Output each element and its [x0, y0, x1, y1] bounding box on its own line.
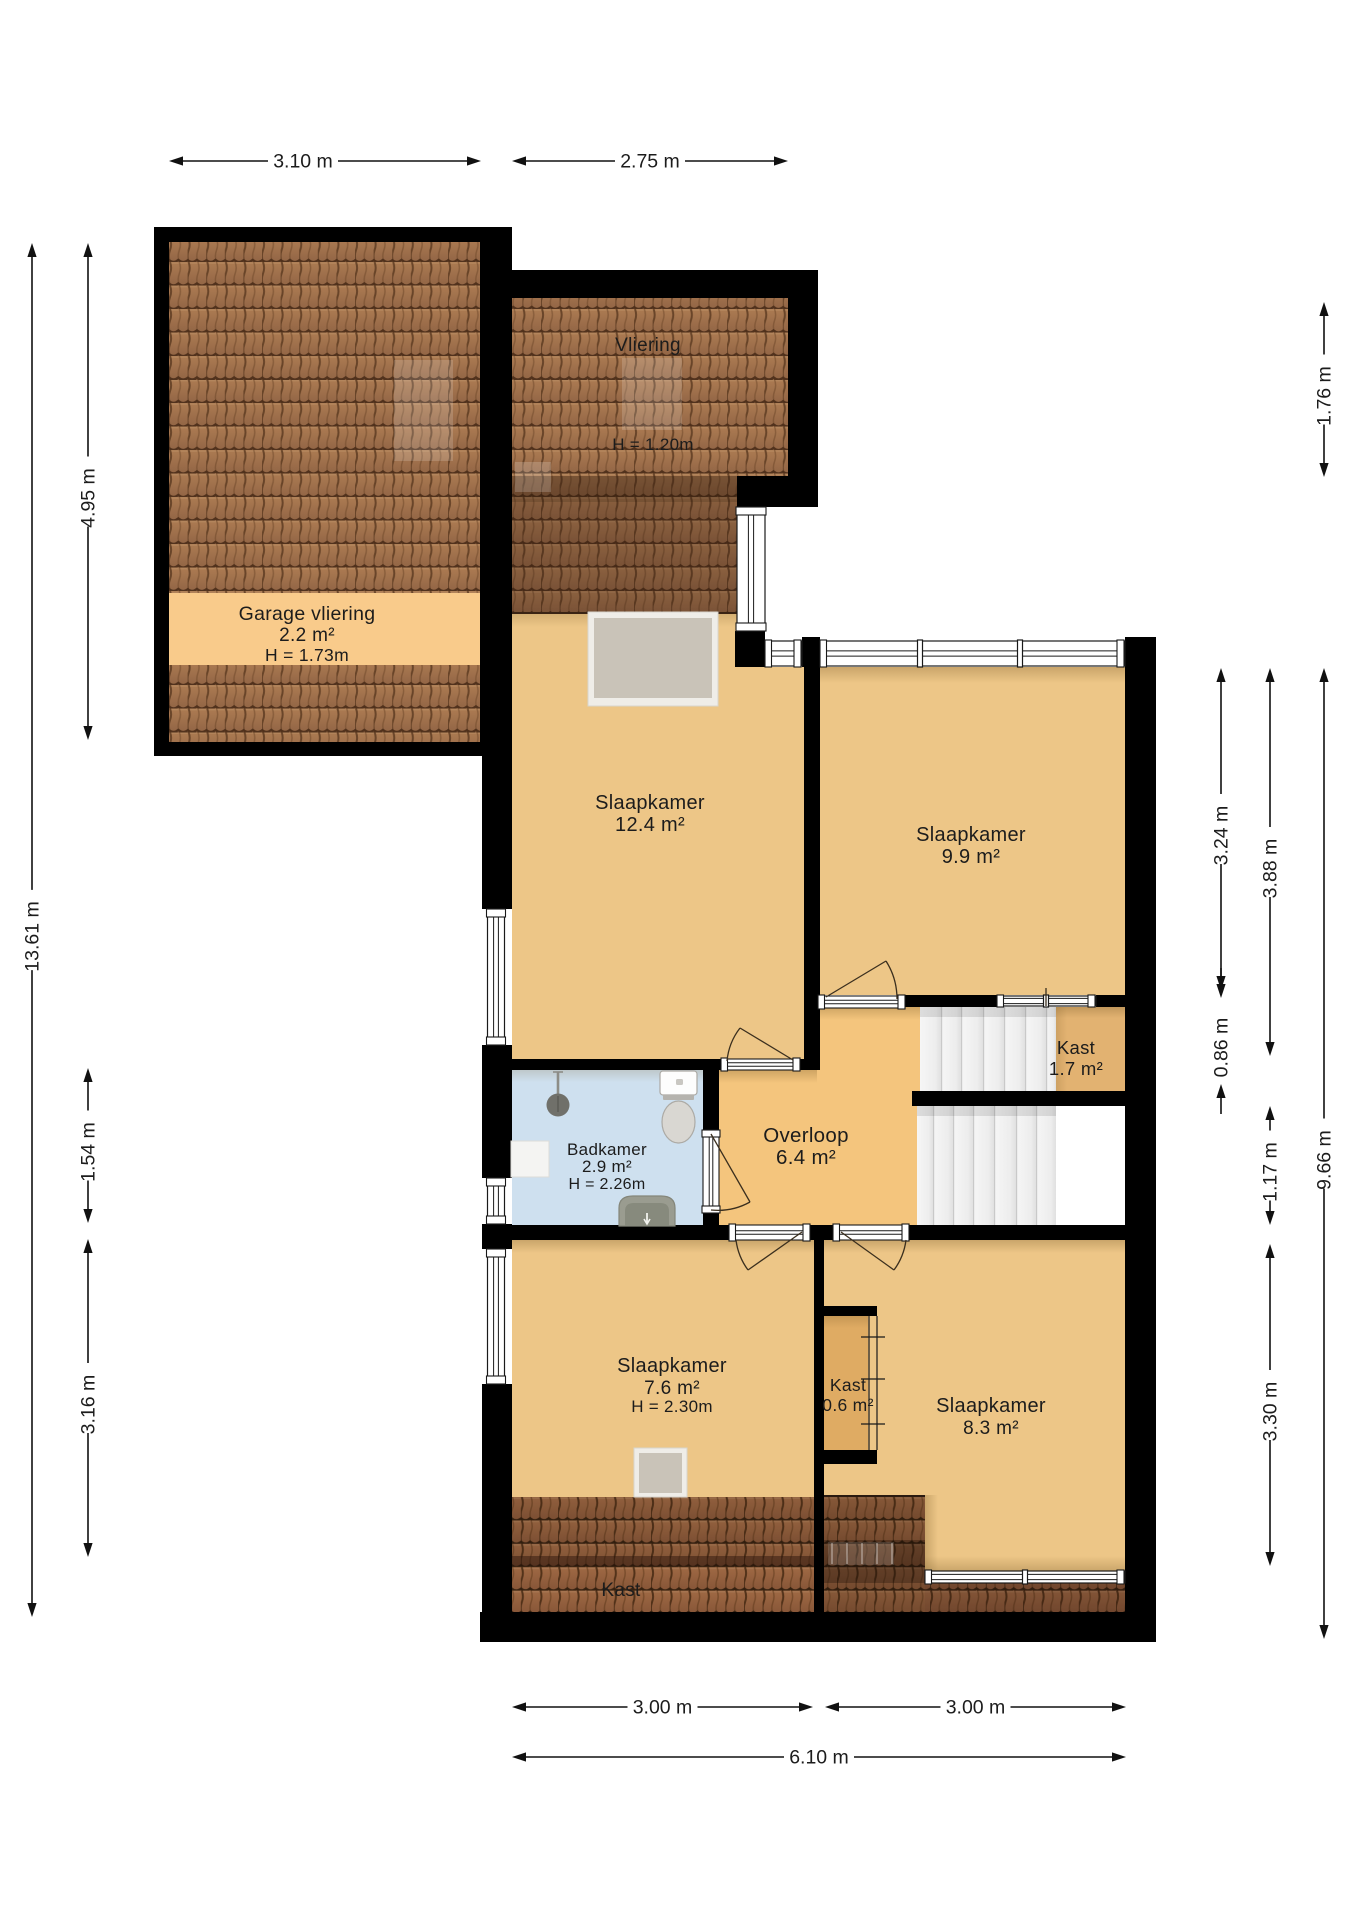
svg-text:3.10 m: 3.10 m — [273, 151, 333, 173]
svg-text:Slaapkamer: Slaapkamer — [936, 1395, 1046, 1417]
svg-text:Slaapkamer: Slaapkamer — [595, 792, 705, 814]
svg-text:Kast: Kast — [601, 1580, 641, 1601]
svg-text:H = 2.26m: H = 2.26m — [569, 1176, 646, 1193]
svg-text:Garage vliering: Garage vliering — [239, 603, 376, 625]
svg-text:2.9 m²: 2.9 m² — [582, 1157, 632, 1176]
svg-text:13.61 m: 13.61 m — [22, 901, 44, 971]
svg-text:8.3 m²: 8.3 m² — [963, 1418, 1019, 1439]
svg-text:1.17 m: 1.17 m — [1260, 1142, 1282, 1202]
svg-text:7.6 m²: 7.6 m² — [644, 1378, 700, 1399]
svg-text:1.54 m: 1.54 m — [78, 1122, 100, 1182]
svg-text:3.24 m: 3.24 m — [1211, 806, 1233, 866]
svg-text:6.4 m²: 6.4 m² — [776, 1146, 836, 1169]
svg-text:Overloop: Overloop — [763, 1124, 849, 1147]
svg-text:Kast: Kast — [830, 1375, 866, 1395]
svg-text:Vliering: Vliering — [615, 335, 681, 356]
svg-text:H = 1.20m: H = 1.20m — [612, 435, 694, 454]
svg-text:3.00 m: 3.00 m — [633, 1697, 693, 1719]
svg-text:9.9 m²: 9.9 m² — [942, 846, 1001, 868]
svg-text:6.10 m: 6.10 m — [789, 1747, 849, 1769]
svg-text:0.6 m²: 0.6 m² — [822, 1395, 873, 1415]
svg-text:1.7 m²: 1.7 m² — [1049, 1058, 1103, 1079]
svg-text:9.66 m: 9.66 m — [1314, 1130, 1336, 1190]
svg-text:3.88 m: 3.88 m — [1260, 839, 1282, 899]
svg-text:3.00 m: 3.00 m — [946, 1697, 1006, 1719]
svg-text:2.2 m²: 2.2 m² — [279, 625, 335, 646]
svg-text:2.75 m: 2.75 m — [620, 151, 680, 173]
svg-text:4.95 m: 4.95 m — [78, 468, 100, 528]
svg-text:0.86 m: 0.86 m — [1211, 1018, 1233, 1078]
svg-text:3.30 m: 3.30 m — [1260, 1382, 1282, 1442]
svg-text:1.76 m: 1.76 m — [1314, 366, 1336, 426]
svg-text:12.4 m²: 12.4 m² — [615, 814, 685, 836]
svg-text:3.16 m: 3.16 m — [78, 1375, 100, 1435]
svg-text:H = 2.30m: H = 2.30m — [631, 1397, 713, 1416]
svg-text:Slaapkamer: Slaapkamer — [617, 1355, 727, 1377]
svg-text:H = 1.73m: H = 1.73m — [265, 645, 349, 665]
svg-text:Slaapkamer: Slaapkamer — [916, 824, 1026, 846]
svg-text:Kast: Kast — [1057, 1037, 1095, 1058]
